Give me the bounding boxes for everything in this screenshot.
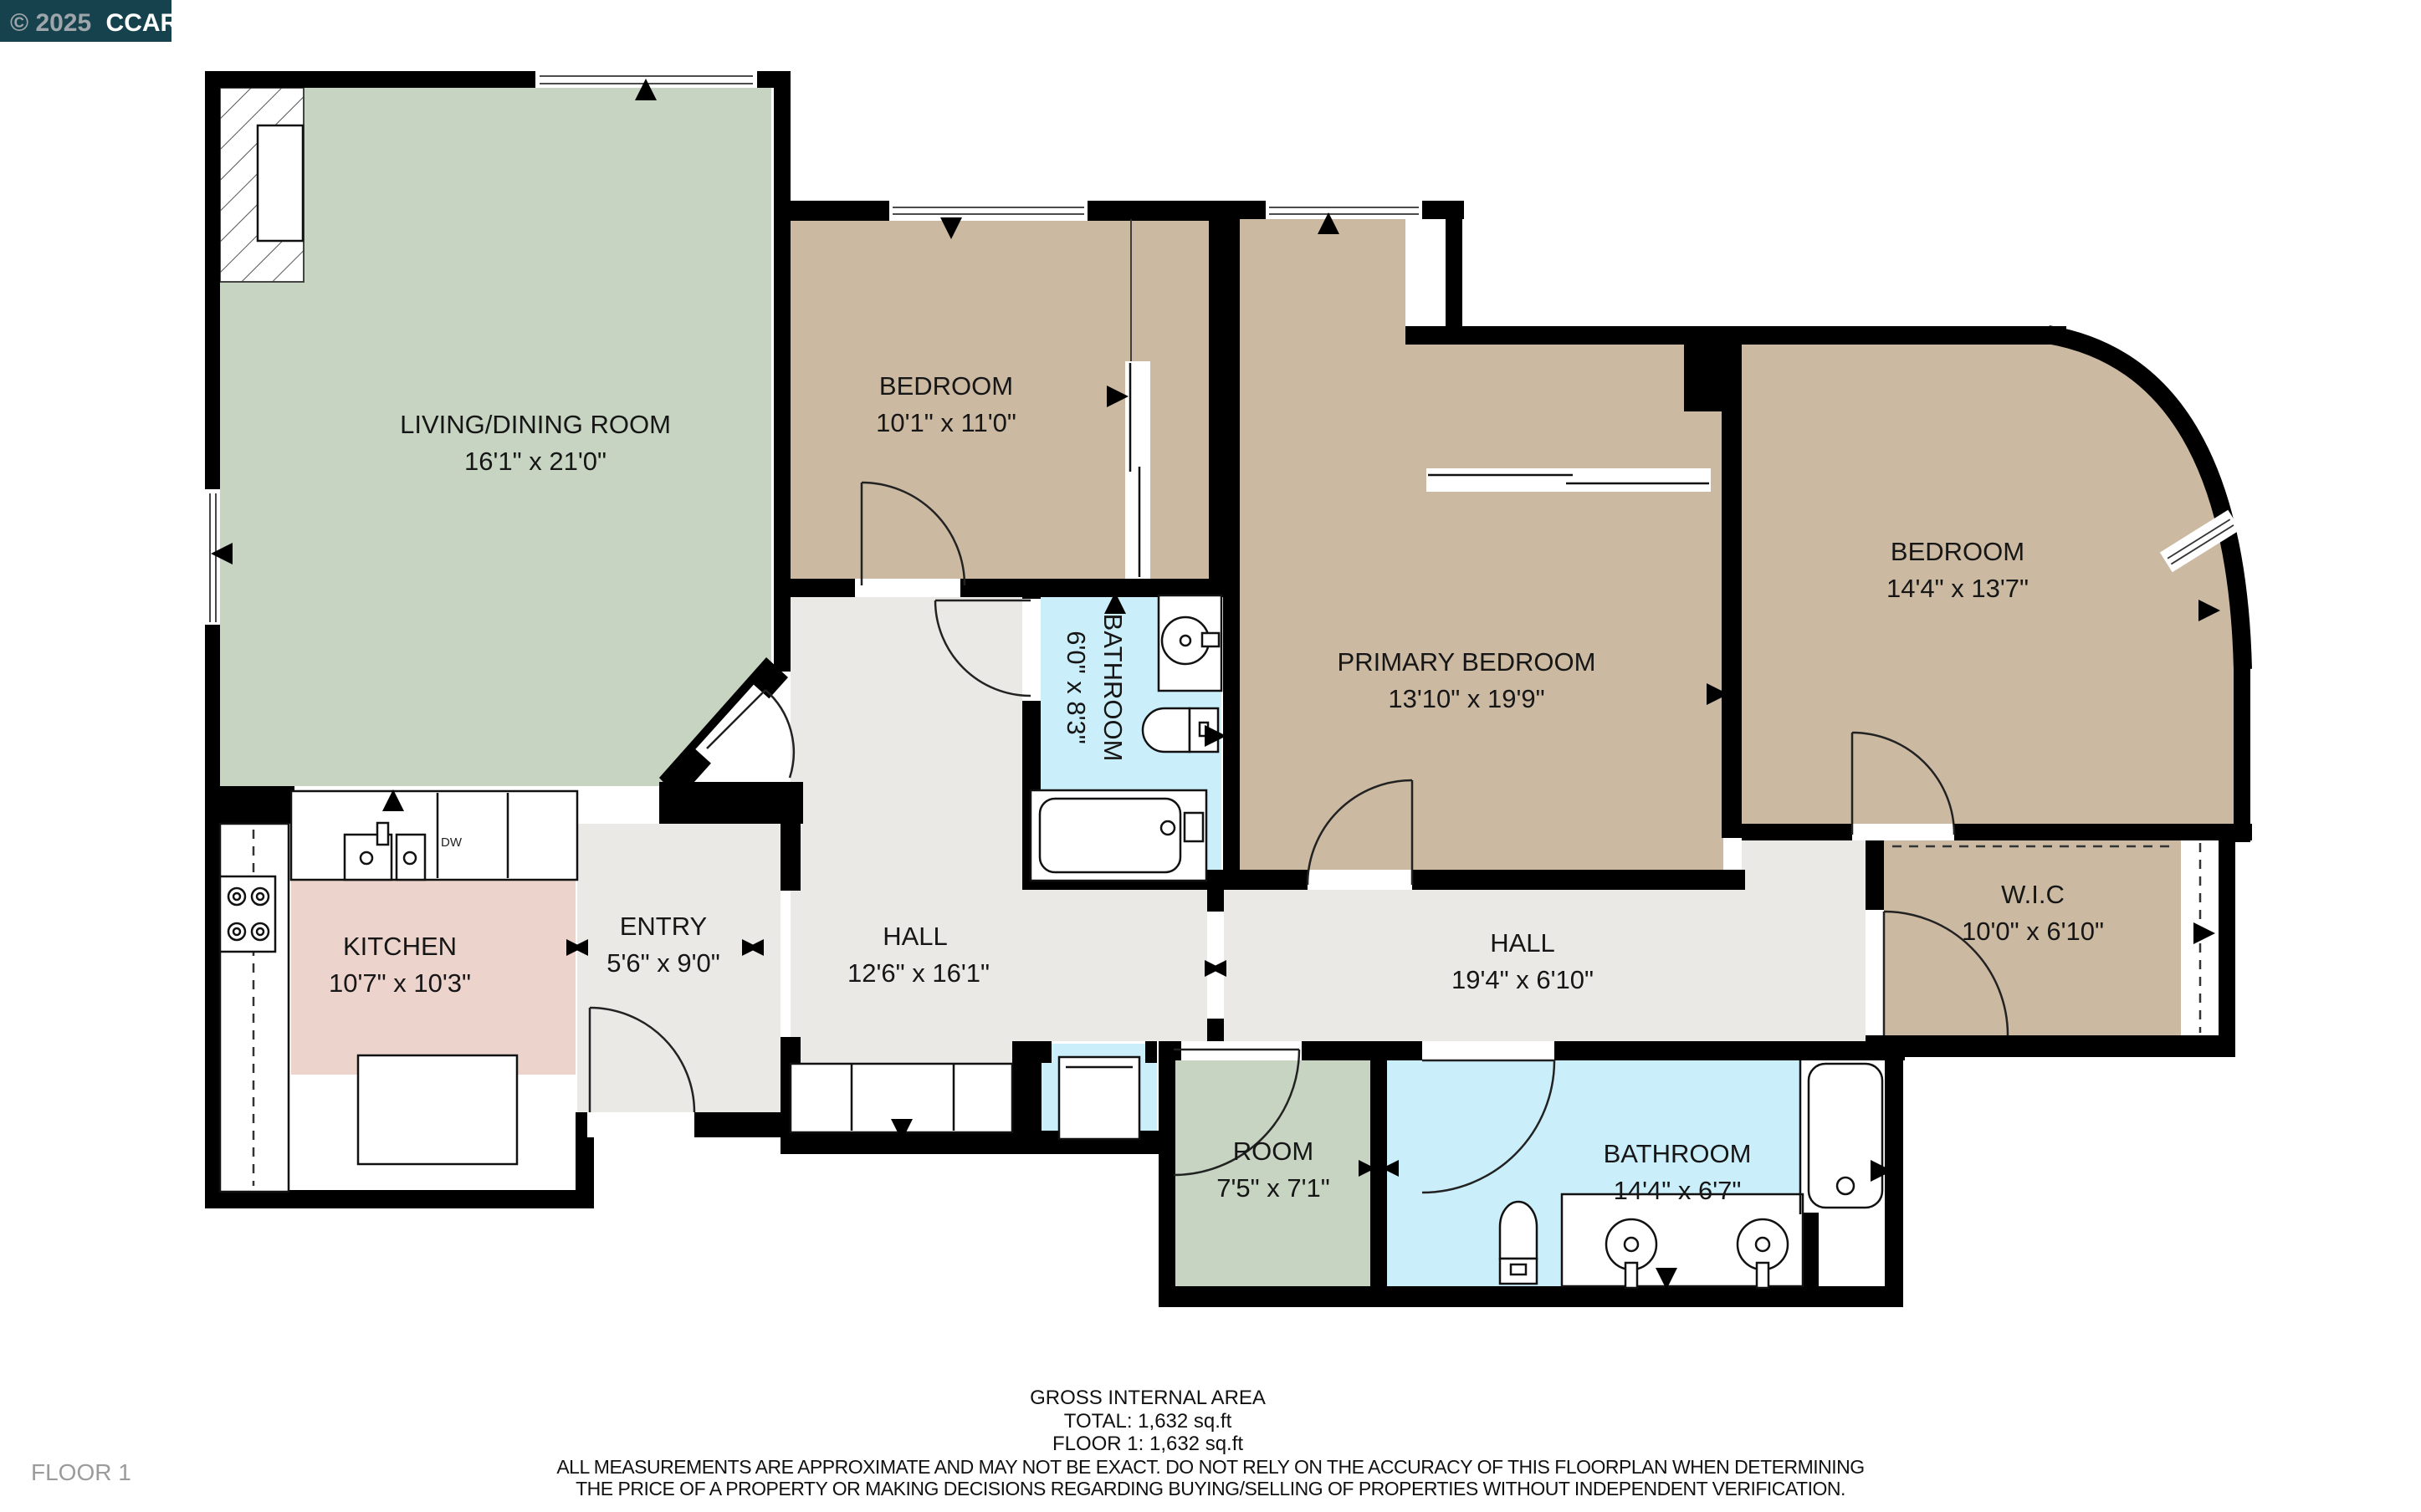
entry-label: ENTRY xyxy=(620,912,708,941)
primary-window xyxy=(1266,201,1422,219)
fireplace xyxy=(220,88,304,282)
svg-text:© 2025 CCAR: © 2025 CCAR xyxy=(10,9,179,37)
floor-number-label: FLOOR 1 xyxy=(31,1459,131,1485)
bedroom1-dims: 10'1" x 11'0" xyxy=(876,408,1016,437)
living-room-dims: 16'1" x 21'0" xyxy=(464,447,607,476)
room-label: ROOM xyxy=(1233,1137,1313,1166)
bath2-toilet-tank xyxy=(1500,1259,1537,1284)
disclaimer-line1: ALL MEASUREMENTS ARE APPROXIMATE AND MAY… xyxy=(556,1456,1864,1478)
wic-label: W.I.C xyxy=(2001,880,2065,909)
disclaimer-line2: THE PRICE OF A PROPERTY OR MAKING DECISI… xyxy=(576,1478,1845,1499)
bathroom1-label: BATHROOM xyxy=(1098,614,1128,762)
floorplan-canvas: LIVING/DINING ROOM 16'1" x 21'0" BEDROOM… xyxy=(0,0,2421,1512)
total-area: TOTAL: 1,632 sq.ft xyxy=(1064,1410,1232,1433)
primary-bedroom-dims: 13'10" x 19'9" xyxy=(1388,684,1544,713)
footer: GROSS INTERNAL AREA TOTAL: 1,632 sq.ft F… xyxy=(31,1387,1865,1499)
primary-bedroom-label: PRIMARY BEDROOM xyxy=(1338,647,1596,677)
hall1-dims: 12'6" x 16'1" xyxy=(847,958,990,988)
bathroom1-dims: 6'0" x 8'3" xyxy=(1062,631,1091,744)
primary-bedroom-floor xyxy=(1240,209,1723,870)
gross-area-heading: GROSS INTERNAL AREA xyxy=(1030,1387,1266,1409)
bath1-toilet-bowl xyxy=(1143,708,1190,752)
hall2-label: HALL xyxy=(1490,928,1555,958)
kitchen-label: KITCHEN xyxy=(343,932,457,961)
bathroom2-dims: 14'4" x 6'7" xyxy=(1614,1176,1742,1205)
floor1-area: FLOOR 1: 1,632 sq.ft xyxy=(1052,1433,1243,1455)
badge-org: CCAR xyxy=(106,9,179,37)
bedroom2-dims: 14'4" x 13'7" xyxy=(1886,574,2029,603)
wic-dims: 10'0" x 6'10" xyxy=(1962,917,2104,946)
kitchen-counter xyxy=(291,791,577,880)
hall1-label: HALL xyxy=(883,922,948,951)
shower-stall xyxy=(1059,1057,1139,1139)
bedroom1-label: BEDROOM xyxy=(879,371,1013,401)
bedroom2-label: BEDROOM xyxy=(1891,537,2024,566)
stove xyxy=(220,876,275,952)
dishwasher-label: DW xyxy=(441,835,463,850)
kitchen-island xyxy=(358,1055,517,1164)
badge-year: © 2025 xyxy=(10,9,91,37)
bath2-tub xyxy=(1809,1064,1882,1208)
room-dims: 7'5" x 7'1" xyxy=(1216,1173,1330,1203)
entry-dims: 5'6" x 9'0" xyxy=(607,948,720,978)
living-room-label: LIVING/DINING ROOM xyxy=(400,410,671,439)
kitchen-dims: 10'7" x 10'3" xyxy=(329,968,471,998)
kitchen-faucet xyxy=(377,823,388,845)
copyright-badge: © 2025 CCAR xyxy=(0,0,179,42)
bathroom2-label: BATHROOM xyxy=(1604,1139,1752,1168)
bedroom1-window xyxy=(889,201,1088,221)
hall2-dims: 19'4" x 6'10" xyxy=(1451,965,1594,994)
floorplan-page: LIVING/DINING ROOM 16'1" x 21'0" BEDROOM… xyxy=(0,0,2421,1512)
bath2-toilet-bowl xyxy=(1500,1202,1537,1259)
bath1-faucet xyxy=(1202,633,1219,646)
